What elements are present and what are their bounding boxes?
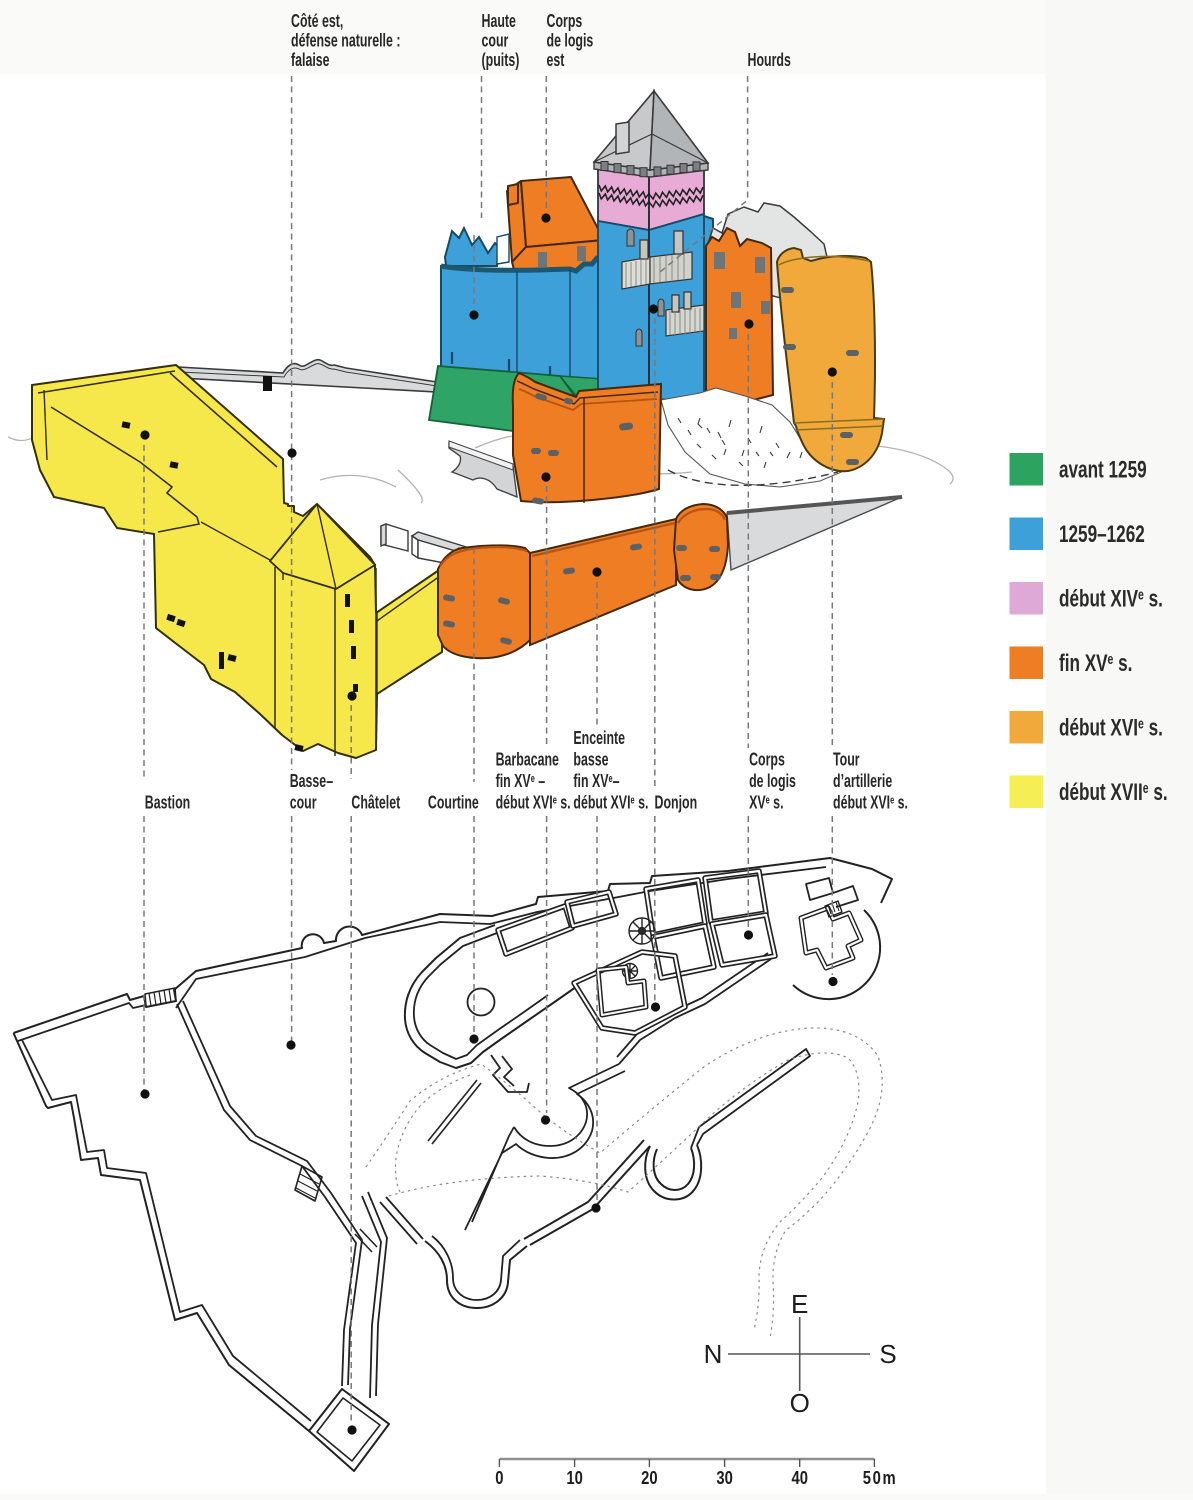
svg-text:S: S <box>879 1339 896 1369</box>
svg-text:20: 20 <box>641 1467 657 1488</box>
svg-text:E: E <box>791 1289 808 1319</box>
svg-text:début XVIe s.: début XVIe s. <box>1059 715 1163 742</box>
svg-text:Bastion: Bastion <box>145 793 190 813</box>
svg-text:O: O <box>790 1388 810 1418</box>
svg-text:(puits): (puits) <box>482 51 520 71</box>
svg-text:40: 40 <box>791 1467 807 1488</box>
svg-text:50m: 50m <box>863 1467 897 1488</box>
svg-text:début XVIe s.: début XVIe s. <box>496 793 571 813</box>
svg-text:début XVIe s.: début XVIe s. <box>573 793 648 813</box>
svg-text:cour: cour <box>290 793 317 813</box>
svg-text:fin XVe–: fin XVe– <box>573 772 619 792</box>
svg-text:de logis: de logis <box>749 772 796 792</box>
svg-text:1259–1262: 1259–1262 <box>1059 521 1145 548</box>
svg-text:Basse–: Basse– <box>290 772 334 792</box>
svg-text:est: est <box>547 51 565 71</box>
svg-text:défense naturelle :: défense naturelle : <box>291 31 400 51</box>
svg-text:avant 1259: avant 1259 <box>1059 457 1147 484</box>
svg-text:Côté est,: Côté est, <box>291 12 343 32</box>
svg-text:fin XVe –: fin XVe – <box>496 772 546 792</box>
svg-text:Barbacane: Barbacane <box>496 750 560 770</box>
svg-text:début XVIe s.: début XVIe s. <box>833 793 908 813</box>
svg-text:début XIVe s.: début XIVe s. <box>1059 586 1163 613</box>
svg-text:Châtelet: Châtelet <box>351 793 400 813</box>
svg-text:falaise: falaise <box>291 51 330 71</box>
svg-text:Corps: Corps <box>547 12 583 32</box>
svg-text:0: 0 <box>495 1467 503 1488</box>
svg-text:Haute: Haute <box>482 12 517 32</box>
svg-text:fin XVe s.: fin XVe s. <box>1059 650 1132 677</box>
svg-text:Courtine: Courtine <box>428 793 479 813</box>
svg-text:d’artillerie: d’artillerie <box>833 772 892 792</box>
svg-text:30: 30 <box>716 1467 732 1488</box>
svg-text:basse: basse <box>573 750 608 770</box>
svg-text:Donjon: Donjon <box>655 793 698 813</box>
svg-text:début XVIIe s.: début XVIIe s. <box>1059 779 1168 806</box>
svg-text:de logis: de logis <box>547 31 594 51</box>
svg-text:N: N <box>704 1339 723 1369</box>
svg-text:Enceinte: Enceinte <box>573 729 625 749</box>
svg-text:10: 10 <box>566 1467 582 1488</box>
svg-text:Tour: Tour <box>833 750 860 770</box>
svg-text:Hourds: Hourds <box>748 51 792 71</box>
svg-text:cour: cour <box>482 31 509 51</box>
svg-text:Corps: Corps <box>749 750 785 770</box>
